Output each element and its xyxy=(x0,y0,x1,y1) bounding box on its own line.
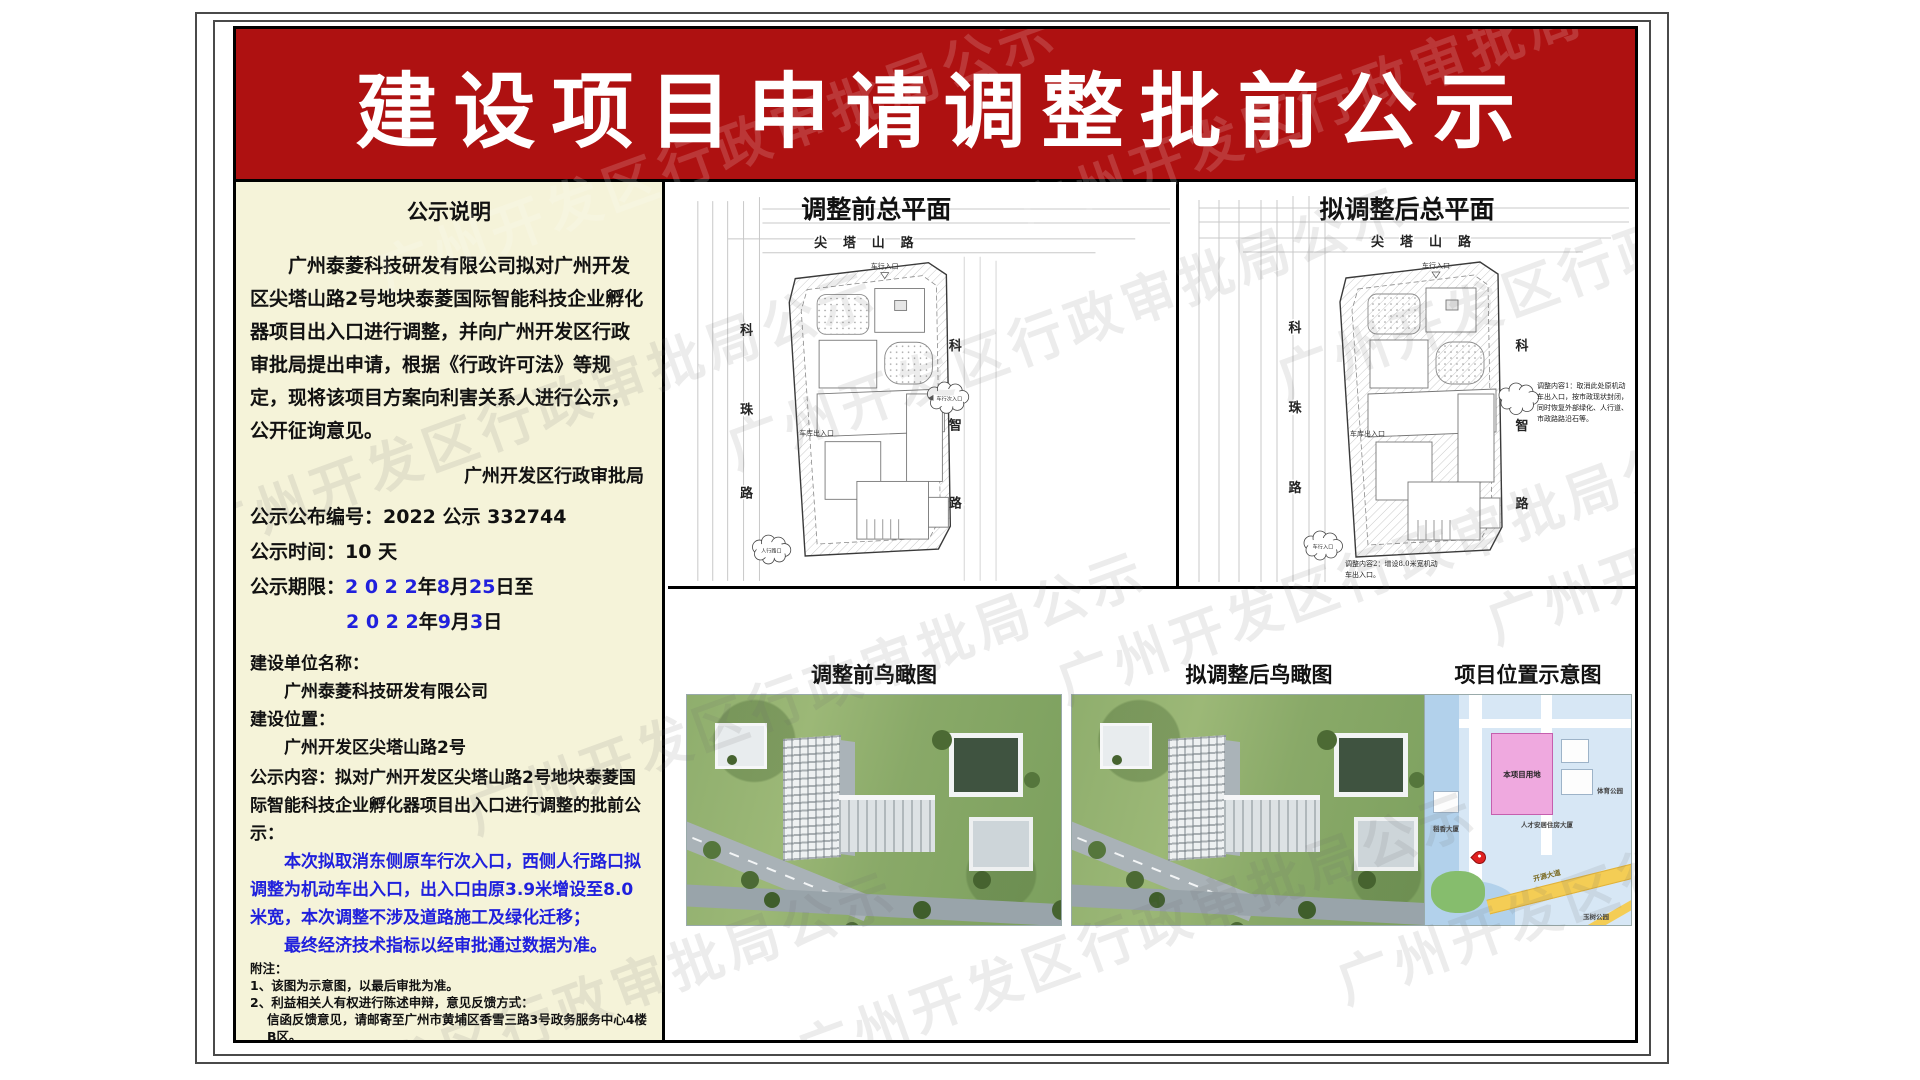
issuing-authority: 广州开发区行政审批局 xyxy=(250,462,648,488)
svg-text:调整内容2：增设8.0米宽机动: 调整内容2：增设8.0米宽机动 xyxy=(1345,559,1438,568)
road-label-top: 尖塔山路 xyxy=(1371,234,1487,250)
builder-name-value: 广州泰菱科技研发有限公司 xyxy=(250,678,648,706)
svg-text:同时恢复外部绿化、人行道、: 同时恢复外部绿化、人行道、 xyxy=(1537,403,1628,412)
publish-number-label: 公示公布编号： xyxy=(250,506,383,528)
svg-text:调整内容1：取消此处原机动: 调整内容1：取消此处原机动 xyxy=(1537,381,1625,390)
road-label-right-1: 科 xyxy=(949,338,962,354)
garage-entrance-label: 车库出入口 xyxy=(1350,429,1385,438)
road-label-left-2: 珠 xyxy=(1288,400,1302,416)
period-month: 8 xyxy=(437,576,450,598)
period-month-char: 月 xyxy=(450,576,469,598)
aerial-after-title: 拟调整后鸟瞰图 xyxy=(1071,659,1447,689)
entrance-top-label: 车行入口 xyxy=(1422,261,1450,270)
building xyxy=(969,817,1033,871)
site-plan-after-panel: 拟调整后总平面 尖塔山路 科 珠 路 科 智 路 xyxy=(1179,182,1635,589)
notice-fields: 公示公布编号：2022 公示 332744 公示时间：10 天 公示期限：2 0… xyxy=(250,500,648,640)
location-value: 广州开发区尖塔山路2号 xyxy=(250,734,648,762)
site-plan-before-drawing: 尖塔山路 科 珠 路 科 智 路 xyxy=(668,182,1176,586)
page-title: 建设项目申请调整批前公示 xyxy=(339,45,1531,164)
period2-month: 9 xyxy=(438,611,451,633)
building xyxy=(715,723,767,769)
builder-name-label: 建设单位名称： xyxy=(250,650,648,678)
period2-day-char: 日 xyxy=(483,611,502,633)
site-plan-before-title: 调整前总平面 xyxy=(668,190,1085,226)
road-label-right-2: 智 xyxy=(949,418,962,434)
period2-year-char: 年 xyxy=(419,611,438,633)
park-area xyxy=(1431,871,1485,913)
location-map-figure: 项目位置示意图 本项目用地 人才安居住房大厦 xyxy=(1424,659,1632,926)
road-label-left-2: 珠 xyxy=(740,402,754,418)
map-label: 稻香大厦 xyxy=(1433,823,1459,833)
adjustment-description: 本次拟取消东侧原车行次入口，西侧人行路口拟调整为机动车出入口，出入口由原3.9米… xyxy=(250,848,648,932)
publish-number-row: 公示公布编号：2022 公示 332744 xyxy=(250,500,648,535)
aerial-render xyxy=(1072,695,1446,925)
note-item: 2、利益相关人有权进行陈述申辩，意见反馈方式： xyxy=(250,994,648,1011)
aerial-render xyxy=(687,695,1061,925)
notice-body-paragraph: 广州泰菱科技研发有限公司拟对广州开发区尖塔山路2号地块泰菱国际智能科技企业孵化器… xyxy=(250,250,648,448)
building-green-roof xyxy=(1334,733,1408,797)
cloud-bottom-label: 车行入口 xyxy=(1313,543,1334,551)
aerial-before-title: 调整前鸟瞰图 xyxy=(686,659,1062,689)
period-year-char: 年 xyxy=(418,576,437,598)
trees xyxy=(727,755,737,765)
notice-content-box: 建设项目申请调整批前公示 公示说明 广州泰菱科技研发有限公司拟对广州开发区尖塔山… xyxy=(233,26,1638,1043)
builder-block: 建设单位名称： 广州泰菱科技研发有限公司 建设位置： 广州开发区尖塔山路2号 xyxy=(250,650,648,762)
building xyxy=(1100,723,1152,769)
building-wing xyxy=(839,795,935,852)
note-item: 1、该图为示意图，以最后审批为准。 xyxy=(250,977,648,994)
revision-cloud-right xyxy=(1499,383,1539,415)
period2-month-char: 月 xyxy=(451,611,470,633)
building-green-roof xyxy=(949,733,1023,797)
publish-duration-label: 公示时间： xyxy=(250,541,345,563)
road-label-right-1: 科 xyxy=(1515,338,1528,354)
publish-period-label: 公示期限： xyxy=(250,576,345,598)
publish-duration-row: 公示时间：10 天 xyxy=(250,535,648,570)
site-plan-after-title: 拟调整后总平面 xyxy=(1179,190,1635,226)
garage-entrance-label: 车库出入口 xyxy=(799,429,834,438)
road-label-right-3: 路 xyxy=(949,495,962,511)
cloud-right-label: 车行次入口 xyxy=(936,394,962,402)
publish-period-row: 公示期限：2 0 2 2年8月25日至 xyxy=(250,570,648,605)
period2-year: 2 0 2 2 xyxy=(346,611,419,633)
note-subline: 信函反馈意见，请邮寄至广州市黄埔区香雪三路3号政务服务中心4楼B区。 xyxy=(250,1011,648,1043)
location-map-image: 本项目用地 人才安居住房大厦 稻香大厦 体育公园 玉树公园 开源大道 xyxy=(1424,694,1632,926)
period-year: 2 0 2 2 xyxy=(345,576,418,598)
notes-section: 附注： 1、该图为示意图，以最后审批为准。 2、利益相关人有权进行陈述申辩，意见… xyxy=(250,960,648,1043)
publish-duration-value: 10 天 xyxy=(345,541,397,563)
map-label: 人才安居住房大厦 xyxy=(1521,819,1573,829)
period-day: 25 xyxy=(469,576,495,598)
aerial-after-image xyxy=(1071,694,1447,926)
road-label-left-3: 路 xyxy=(1288,480,1302,496)
publish-number-value: 2022 公示 332744 xyxy=(383,506,566,528)
notice-panel: 公示说明 广州泰菱科技研发有限公司拟对广州开发区尖塔山路2号地块泰菱国际智能科技… xyxy=(236,182,665,1040)
map-building xyxy=(1433,791,1459,813)
trees xyxy=(1112,755,1122,765)
location-map-title: 项目位置示意图 xyxy=(1424,659,1632,689)
road-label-left-1: 科 xyxy=(740,322,753,338)
notice-panel-title: 公示说明 xyxy=(250,196,648,226)
period-day-char: 日至 xyxy=(495,576,533,598)
notes-label: 附注： xyxy=(250,960,648,977)
period2-day: 3 xyxy=(470,611,483,633)
tower-building xyxy=(1168,735,1226,861)
road-label-left-3: 路 xyxy=(740,485,753,501)
publish-period-row2: 2 0 2 2年9月3日 xyxy=(250,605,648,640)
map-building xyxy=(1561,739,1589,763)
site-plan-before-panel: 调整前总平面 尖塔山路 科 珠 路 科 智 路 xyxy=(668,182,1179,589)
aerial-after-figure: 拟调整后鸟瞰图 xyxy=(1071,659,1447,926)
tower-building xyxy=(783,735,841,861)
cloud-bottom-label: 人行路口 xyxy=(761,547,782,555)
road xyxy=(686,884,1062,926)
banner: 建设项目申请调整批前公示 xyxy=(236,29,1635,182)
revision-cloud-bottom: 车行入口 xyxy=(1304,531,1343,560)
road-label-right-2: 智 xyxy=(1515,418,1528,434)
entrance-top-label: 车行入口 xyxy=(871,262,899,271)
road-left-stripes xyxy=(1199,196,1325,582)
adjustment-note-2: 调整内容2：增设8.0米宽机动 车出入口。 xyxy=(1345,559,1438,579)
location-map: 本项目用地 人才安居住房大厦 稻香大厦 体育公园 玉树公园 开源大道 xyxy=(1425,695,1631,925)
project-site-label: 本项目用地 xyxy=(1503,769,1541,780)
notice-content-paragraph: 公示内容：拟对广州开发区尖塔山路2号地块泰菱国际智能科技企业孵化器项目出入口进行… xyxy=(250,764,648,848)
svg-text:车出入口，按市政现状封闭，: 车出入口，按市政现状封闭， xyxy=(1537,392,1628,401)
svg-text:车出入口。: 车出入口。 xyxy=(1345,570,1380,579)
svg-text:市政路路沿石等。: 市政路路沿石等。 xyxy=(1537,414,1593,423)
map-avenue xyxy=(1486,847,1632,915)
road xyxy=(1071,884,1447,926)
aerial-before-image xyxy=(686,694,1062,926)
road-label-left-1: 科 xyxy=(1288,320,1301,336)
building-wing xyxy=(1224,795,1320,852)
map-label: 玉树公园 xyxy=(1583,911,1609,921)
project-site-block: 本项目用地 xyxy=(1491,733,1553,815)
map-building xyxy=(1561,769,1593,795)
road-right-stripes xyxy=(964,257,996,581)
adjustment-note-1: 调整内容1：取消此处原机动 车出入口，按市政现状封闭， 同时恢复外部绿化、人行道… xyxy=(1537,381,1628,423)
road-label-right-3: 路 xyxy=(1515,496,1529,512)
road-left-stripes xyxy=(698,197,760,581)
location-label: 建设位置： xyxy=(250,706,648,734)
final-indicator-note: 最终经济技术指标以经审批通过数据为准。 xyxy=(250,932,648,960)
revision-cloud-bottom: 人行路口 xyxy=(753,535,791,564)
map-label: 体育公园 xyxy=(1597,785,1623,795)
aerial-before-figure: 调整前鸟瞰图 xyxy=(686,659,1062,926)
notice-poster: 建设项目申请调整批前公示 公示说明 广州泰菱科技研发有限公司拟对广州开发区尖塔山… xyxy=(0,0,1920,1080)
road-label-top: 尖塔山路 xyxy=(814,235,929,251)
site-plan-after-drawing: 尖塔山路 科 珠 路 科 智 路 xyxy=(1179,182,1635,586)
building xyxy=(1354,817,1418,871)
